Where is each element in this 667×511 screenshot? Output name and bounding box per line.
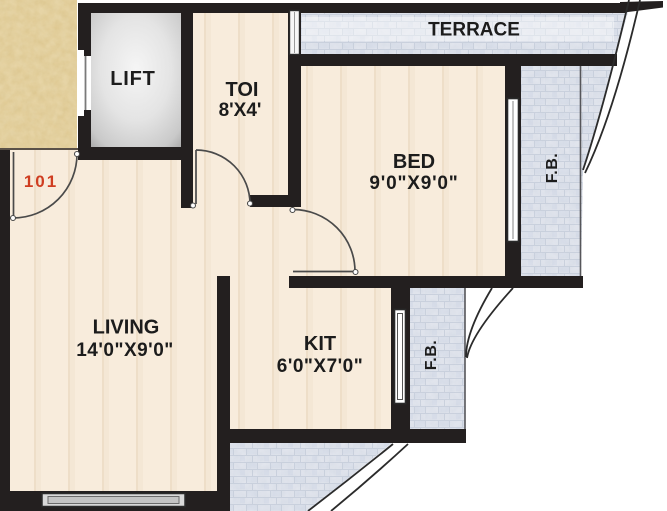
svg-text:LIVING: LIVING	[93, 317, 160, 339]
svg-text:TERRACE: TERRACE	[428, 20, 520, 41]
svg-text:6'0"X7'0": 6'0"X7'0"	[277, 356, 364, 377]
svg-text:LIFT: LIFT	[110, 68, 155, 90]
svg-text:101: 101	[24, 172, 58, 191]
svg-text:F.B.: F.B.	[423, 340, 440, 370]
svg-text:BED: BED	[393, 151, 435, 173]
svg-text:F.B.: F.B.	[544, 153, 561, 183]
svg-text:9'0"X9'0": 9'0"X9'0"	[369, 173, 458, 194]
svg-text:14'0"X9'0": 14'0"X9'0"	[76, 340, 174, 361]
svg-text:8'X4': 8'X4'	[219, 100, 262, 121]
svg-text:KIT: KIT	[304, 333, 336, 355]
svg-text:TOI: TOI	[226, 79, 259, 101]
